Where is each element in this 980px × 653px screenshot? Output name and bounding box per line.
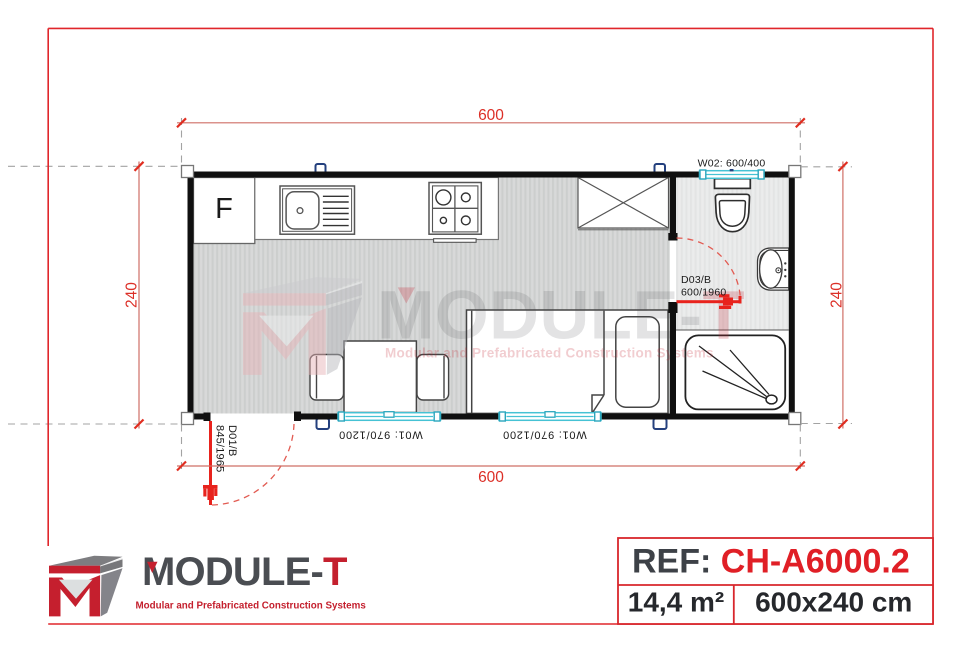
svg-text:D01/B: D01/B: [226, 425, 238, 457]
svg-text:600x240 cm: 600x240 cm: [755, 587, 912, 618]
svg-text:REF: CH-A6000.2: REF: CH-A6000.2: [632, 543, 910, 581]
svg-text:W02: 600/400: W02: 600/400: [698, 158, 766, 170]
svg-text:D03/B: D03/B: [681, 274, 711, 286]
svg-text:240: 240: [124, 282, 141, 308]
svg-text:MODULE-T: MODULE-T: [142, 550, 347, 594]
svg-text:Modular and Prefabricated Cons: Modular and Prefabricated Construction S…: [385, 346, 714, 361]
svg-text:F: F: [215, 193, 233, 225]
svg-text:14,4 m²: 14,4 m²: [628, 587, 725, 618]
svg-text:600: 600: [478, 469, 504, 486]
svg-text:Modular and Prefabricated Cons: Modular and Prefabricated Construction S…: [136, 601, 367, 612]
svg-text:600/1960: 600/1960: [681, 287, 726, 299]
svg-text:W01: 970/1200: W01: 970/1200: [338, 429, 422, 441]
svg-text:W01: 970/1200: W01: 970/1200: [502, 429, 586, 441]
svg-text:600: 600: [478, 107, 504, 124]
svg-text:240: 240: [829, 282, 846, 308]
svg-text:845/1965: 845/1965: [214, 425, 226, 472]
